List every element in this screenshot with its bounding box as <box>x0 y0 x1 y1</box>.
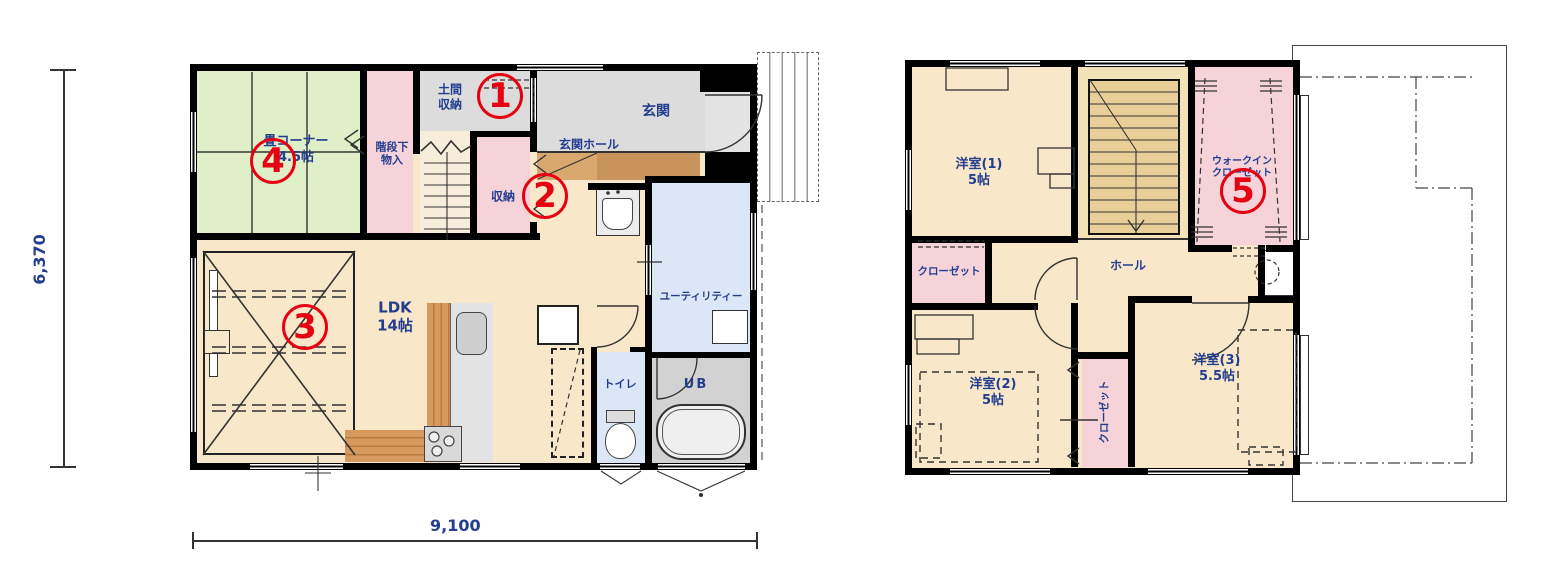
stair-edge <box>1078 238 1188 240</box>
wall <box>530 137 537 152</box>
window-frame <box>1300 335 1309 455</box>
wall <box>1191 245 1232 252</box>
dimension-height: 6,370 <box>30 234 49 285</box>
window <box>658 463 745 470</box>
wall <box>700 64 757 92</box>
wall <box>1258 245 1265 303</box>
marker-1: 1 <box>477 73 523 119</box>
wall <box>912 236 1078 243</box>
dimension-width: 9,100 <box>430 516 481 535</box>
wall <box>1248 296 1300 303</box>
wall <box>1071 303 1078 467</box>
label-bath: UB <box>684 377 708 393</box>
wall <box>530 222 537 240</box>
wall <box>645 183 652 245</box>
wall <box>1071 67 1078 240</box>
marker-3: 3 <box>282 304 328 350</box>
window <box>1293 335 1300 455</box>
window <box>1148 468 1248 475</box>
window <box>1293 95 1300 240</box>
label-hall2f: ホール <box>1110 259 1146 274</box>
wall <box>1135 296 1192 303</box>
label-closet1: クローゼット <box>918 266 981 279</box>
label-closet2: クローゼット <box>1099 381 1112 444</box>
wall <box>912 303 1038 310</box>
wall <box>470 131 537 137</box>
dimension-tick <box>756 532 758 549</box>
window <box>750 213 757 290</box>
wall <box>470 131 477 240</box>
wall <box>413 64 420 154</box>
label-storage: 収納 <box>491 190 515 205</box>
wall <box>645 295 652 463</box>
wall <box>360 64 367 238</box>
window-frame <box>1300 95 1309 240</box>
marker-2: 2 <box>522 173 568 219</box>
label-genkan-hall: 玄関ホール <box>559 138 619 153</box>
marker-4: 4 <box>250 138 296 184</box>
window <box>950 60 1040 67</box>
label-utility: ユーティリティー <box>660 291 743 304</box>
dimension-line-horizontal <box>193 540 757 542</box>
wall <box>630 347 652 352</box>
label-toilet: トイレ <box>604 377 637 390</box>
window <box>190 258 197 432</box>
label-ldk: LDK 14帖 <box>377 299 413 336</box>
marker-5: 5 <box>1220 168 1266 214</box>
entrance-porch-steps <box>757 52 819 202</box>
wall <box>1078 352 1135 359</box>
window <box>905 365 912 425</box>
window <box>250 463 343 470</box>
lower-roof-outline <box>1292 45 1507 502</box>
wall <box>652 352 750 358</box>
window <box>1085 60 1185 67</box>
window <box>460 463 520 470</box>
wall <box>1188 67 1195 252</box>
label-room3: 洋室(3) 5.5帖 <box>1194 353 1241 385</box>
wall <box>1266 245 1300 252</box>
label-doma: 土間 収納 <box>438 82 462 111</box>
wall <box>197 233 540 240</box>
floorplan-canvas: 畳コーナー 4.5帖 階段下 物入 土間 収納 収納 玄関 玄関ホール LDK … <box>0 0 1556 576</box>
label-room1: 洋室(1) 5帖 <box>956 157 1003 189</box>
dimension-tick <box>192 532 194 549</box>
window <box>517 64 603 71</box>
wall <box>645 176 757 183</box>
window <box>950 468 1050 475</box>
floor1-outer-wall <box>190 64 757 470</box>
label-genkan: 玄関 <box>642 103 670 120</box>
wall <box>985 236 992 310</box>
label-room2: 洋室(2) 5帖 <box>970 377 1017 409</box>
wall <box>1128 296 1135 467</box>
doma-door-opening <box>530 78 537 122</box>
wall <box>588 183 652 190</box>
utility-door-opening <box>645 245 652 295</box>
wall <box>591 347 597 463</box>
window <box>190 112 197 172</box>
dimension-line-vertical <box>63 70 65 467</box>
dimension-tick <box>50 466 76 468</box>
window <box>600 463 640 470</box>
dimension-tick <box>50 69 76 71</box>
label-understair: 階段下 物入 <box>376 141 409 168</box>
window <box>905 150 912 210</box>
